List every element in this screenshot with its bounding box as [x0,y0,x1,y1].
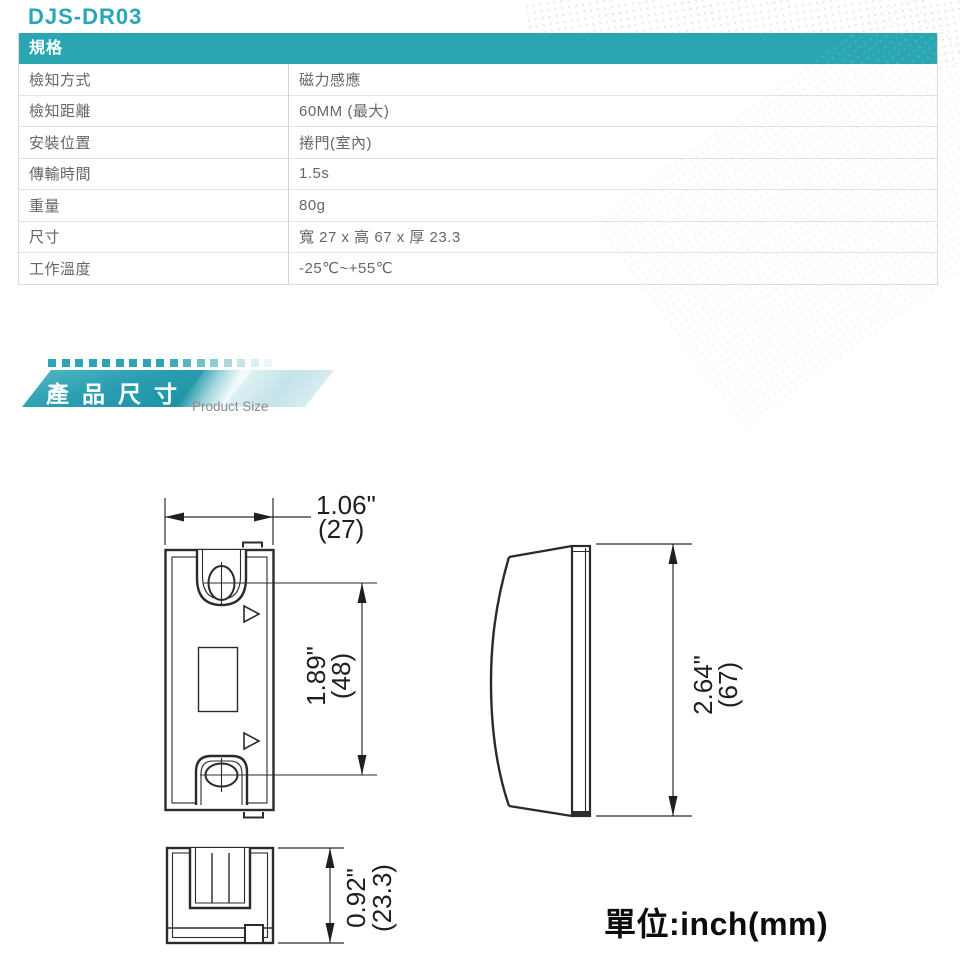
arrowhead-up-icon [358,583,367,603]
arrowhead-left-icon [165,513,184,522]
banner-square [48,359,56,367]
side-bottom-edge [509,806,572,816]
spec-label: 檢知距離 [19,95,289,127]
spec-value: 60MM (最大) [289,95,938,127]
banner-square [170,359,178,367]
unit-note: 單位:inch(mm) [604,899,828,945]
spec-label: 重量 [19,190,289,222]
spec-row: 傳輸時間1.5s [19,158,937,190]
spec-row: 重量80g [19,190,937,222]
spec-label: 傳輸時間 [19,158,289,190]
bottom-depth-dimension [278,848,344,943]
spec-table-body: 檢知方式磁力感應檢知距離60MM (最大)安裝位置捲門(室內)傳輸時間1.5s重… [19,64,937,284]
bottom-tab-box [245,925,263,943]
spec-value: 磁力感應 [289,64,938,95]
bottom-view: 0.92" (23.3) [167,848,397,943]
front-bottom-tab [244,812,263,818]
banner-square [75,359,83,367]
spec-label: 尺寸 [19,221,289,253]
triangle-marker-icon [244,733,259,749]
banner-square [183,359,191,367]
banner-square [102,359,110,367]
side-bottom-cap [573,811,590,816]
spec-table: 規格 檢知方式磁力感應檢知距離60MM (最大)安裝位置捲門(室內)傳輸時間1.… [18,33,938,285]
arrowhead-down-icon [326,923,335,943]
product-size-banner: 產品尺寸 Product Size [18,355,338,417]
spec-row: 檢知距離60MM (最大) [19,95,937,127]
spec-label: 檢知方式 [19,64,289,95]
triangle-marker-icon [244,606,259,622]
banner-square [156,359,164,367]
banner-square [89,359,97,367]
banner-square [237,359,245,367]
spec-value: 80g [289,190,938,222]
arrowhead-up-icon [669,544,678,564]
bottom-depth-mm-label: (23.3) [367,864,397,932]
arrowhead-up-icon [326,848,335,868]
front-pitch-dimension [358,583,367,775]
front-pitch-mm-label: (48) [326,653,356,699]
spec-label: 安裝位置 [19,127,289,159]
side-height-dimension [596,544,692,816]
spec-row: 工作溫度-25℃~+55℃ [19,253,937,284]
arrowhead-down-icon [669,796,678,816]
banner-square [129,359,137,367]
banner-square [251,359,259,367]
side-back-plate [572,546,590,816]
front-width-dimension [165,498,311,545]
spec-row: 安裝位置捲門(室內) [19,127,937,159]
section-title-zh: 產品尺寸 [46,375,190,409]
front-label-window [199,648,238,712]
banner-squares [48,359,272,367]
spec-table-header: 規格 [19,33,937,64]
spec-value: 捲門(室內) [289,127,938,159]
product-dimension-drawings: 1.06" (27) 1.89" (48) [0,470,960,960]
spec-value: 1.5s [289,158,938,190]
banner-square [143,359,151,367]
front-top-tab [243,543,262,548]
spec-table-grid: 檢知方式磁力感應檢知距離60MM (最大)安裝位置捲門(室內)傳輸時間1.5s重… [19,64,937,284]
side-curved-face [491,557,509,806]
section-title-en: Product Size [192,399,269,414]
side-height-mm-label: (67) [713,662,743,708]
side-top-edge [509,546,572,557]
spec-value: -25℃~+55℃ [289,253,938,284]
arrowhead-right-icon [254,513,273,522]
banner-square [62,359,70,367]
side-view: 2.64" (67) [491,544,743,816]
banner-square [116,359,124,367]
spec-label: 工作溫度 [19,253,289,284]
banner-square [197,359,205,367]
banner-square [224,359,232,367]
spec-row: 檢知方式磁力感應 [19,64,937,95]
banner-square [264,359,272,367]
arrowhead-down-icon [358,755,367,775]
bottom-slot-box [190,848,250,908]
page-title: DJS-DR03 [28,4,142,30]
spec-value: 寬 27 x 高 67 x 厚 23.3 [289,221,938,253]
front-width-mm-label: (27) [318,514,364,544]
spec-row: 尺寸寬 27 x 高 67 x 厚 23.3 [19,221,937,253]
banner-square [210,359,218,367]
front-view: 1.06" (27) 1.89" (48) [165,490,377,818]
